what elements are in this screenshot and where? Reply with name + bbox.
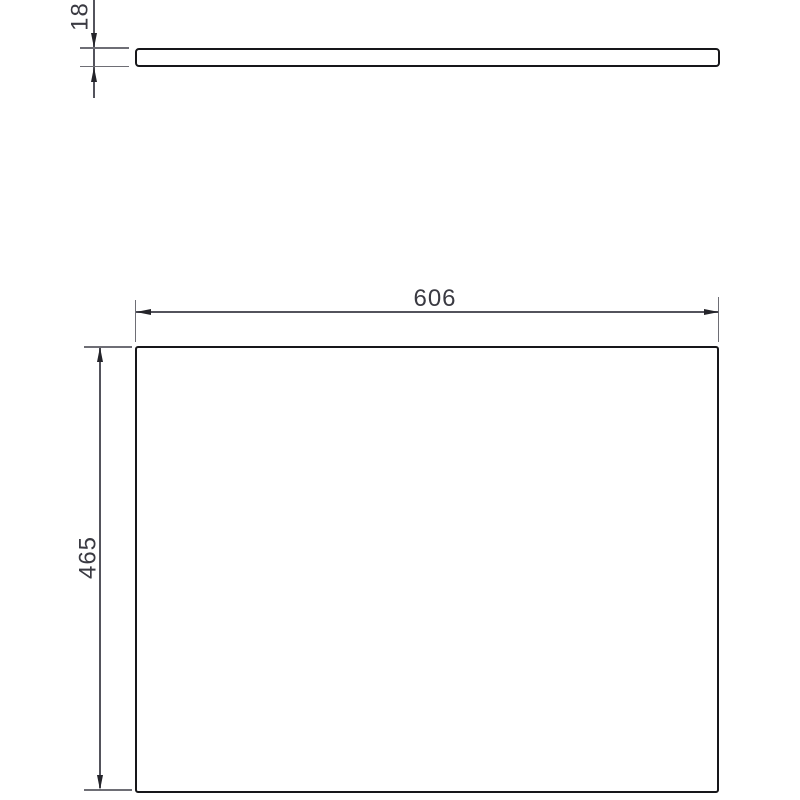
height-arrow-top <box>97 347 103 362</box>
width-extension-line-left <box>135 300 136 342</box>
width-arrow-right <box>704 309 719 315</box>
width-extension-line-right <box>718 297 719 342</box>
height-extension-line-top <box>84 346 132 347</box>
technical-drawing-canvas: 18 606 465 <box>0 0 800 800</box>
thickness-dim-label: 18 <box>69 0 92 40</box>
thickness-dim-line <box>93 0 94 98</box>
panel-top-view <box>135 346 719 793</box>
width-arrow-left <box>136 309 151 315</box>
height-arrow-bottom <box>97 775 103 790</box>
thickness-extension-line-bottom <box>80 66 129 67</box>
height-dim-label: 465 <box>77 527 100 587</box>
height-extension-line-bottom <box>84 789 132 790</box>
width-dim-label: 606 <box>403 287 467 310</box>
panel-side-view <box>135 48 720 67</box>
thickness-extension-line-top <box>80 47 129 48</box>
thickness-arrow-bottom <box>91 67 97 82</box>
